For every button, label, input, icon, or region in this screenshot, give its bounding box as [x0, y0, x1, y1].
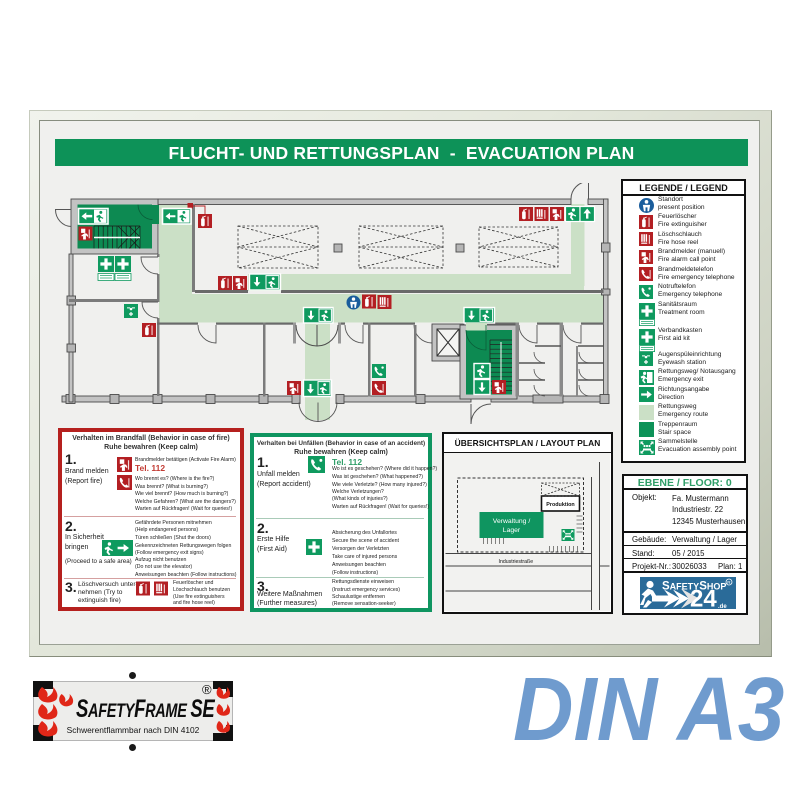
svg-text:.de: .de	[718, 604, 727, 609]
svg-text:Produktion: Produktion	[546, 502, 574, 508]
svg-text:Lager: Lager	[503, 527, 521, 534]
svg-text:Verwaltung /: Verwaltung /	[493, 518, 531, 525]
svg-text:Industriestraße: Industriestraße	[499, 559, 534, 565]
svg-text:24: 24	[690, 585, 717, 609]
